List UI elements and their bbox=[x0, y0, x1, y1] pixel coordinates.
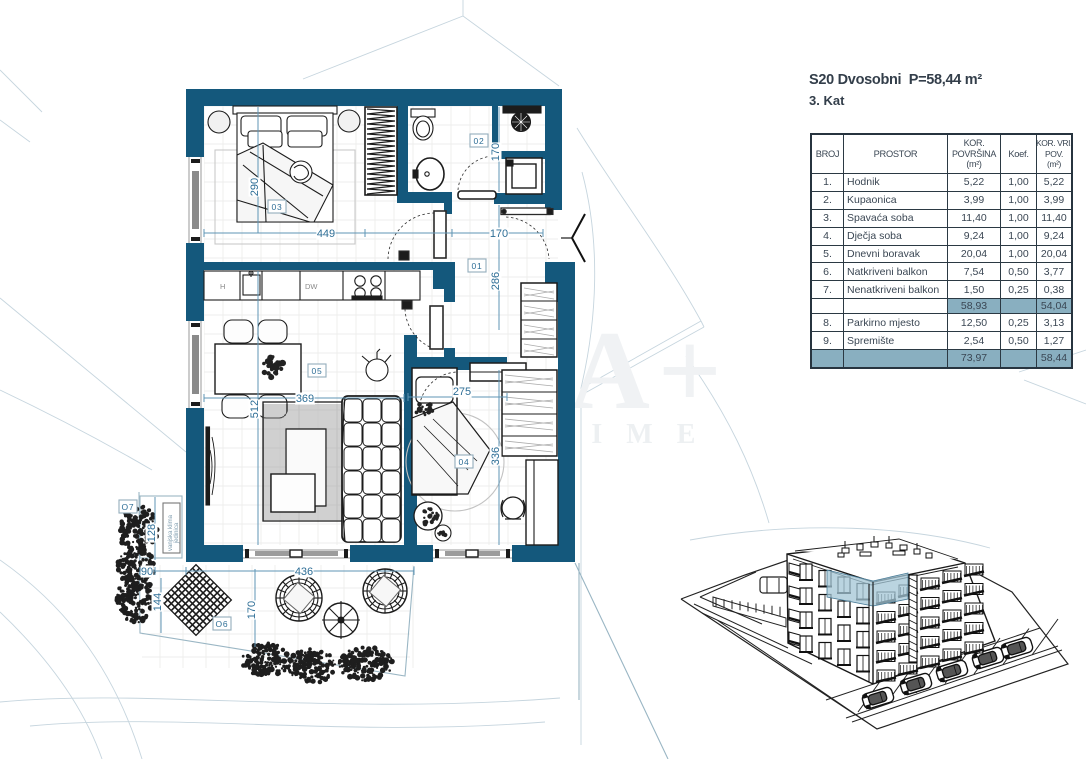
svg-text:H: H bbox=[220, 282, 225, 291]
svg-text:436: 436 bbox=[295, 566, 313, 578]
svg-text:02: 02 bbox=[473, 136, 484, 146]
svg-text:144: 144 bbox=[152, 593, 164, 611]
svg-text:336: 336 bbox=[490, 447, 502, 465]
svg-text:O7: O7 bbox=[122, 502, 135, 512]
svg-text:05: 05 bbox=[311, 366, 322, 376]
svg-text:01: 01 bbox=[471, 261, 482, 271]
svg-text:DW: DW bbox=[305, 282, 318, 291]
svg-text:170: 170 bbox=[490, 228, 508, 240]
svg-text:170: 170 bbox=[246, 601, 258, 619]
svg-text:170: 170 bbox=[490, 143, 502, 161]
svg-text:90: 90 bbox=[141, 566, 153, 578]
svg-text:128: 128 bbox=[146, 524, 158, 542]
svg-text:286: 286 bbox=[490, 272, 502, 290]
svg-text:449: 449 bbox=[317, 228, 335, 240]
svg-text:04: 04 bbox=[458, 457, 469, 467]
svg-text:275: 275 bbox=[453, 386, 471, 398]
svg-text:512: 512 bbox=[249, 400, 261, 418]
svg-text:290: 290 bbox=[249, 178, 261, 196]
svg-text:369: 369 bbox=[296, 393, 314, 405]
svg-text:O6: O6 bbox=[216, 619, 229, 629]
svg-text:jedinica: jedinica bbox=[174, 522, 180, 544]
svg-text:03: 03 bbox=[271, 202, 282, 212]
